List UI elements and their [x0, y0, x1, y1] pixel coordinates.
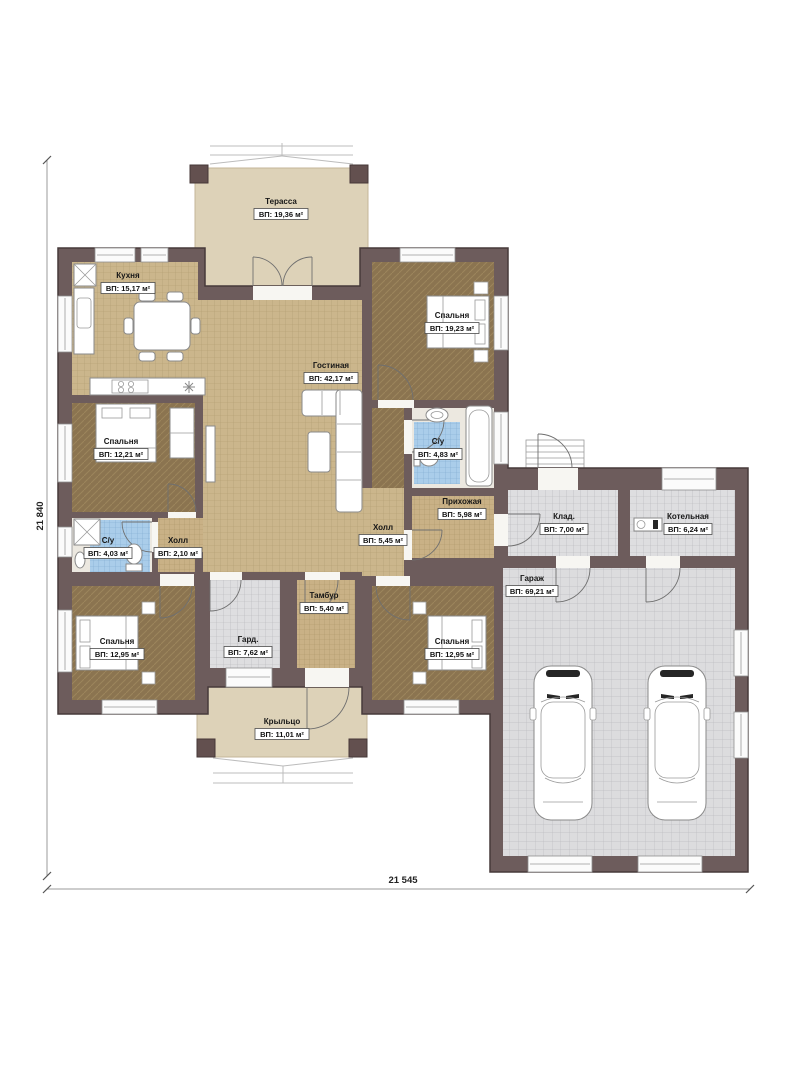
- coffee-table: [308, 432, 330, 472]
- room-name: Спальня: [104, 437, 139, 446]
- terrace-roof-lines: [210, 143, 353, 164]
- room-area: ВП: 7,62 м²: [228, 648, 269, 657]
- room-name: Спальня: [100, 637, 135, 646]
- room-area: ВП: 15,17 м²: [106, 284, 151, 293]
- room-area: ВП: 2,10 м²: [158, 549, 199, 558]
- porch-roof-lines: [213, 758, 353, 783]
- room-name: Спальня: [435, 637, 470, 646]
- room-area: ВП: 7,00 м²: [544, 525, 585, 534]
- room-name: Терасса: [265, 197, 297, 206]
- room-name: Крыльцо: [264, 717, 301, 726]
- room-label-boiler: Котельная ВП: 6,24 м²: [664, 512, 712, 535]
- kitchen-corner-unit: [74, 264, 96, 286]
- corridor-right-floor: [372, 408, 404, 488]
- car: [530, 666, 596, 820]
- garage-door: [528, 856, 592, 872]
- room-name: Гараж: [520, 574, 544, 583]
- dimension-bottom: 21 545: [43, 875, 754, 893]
- room-name: Котельная: [667, 512, 709, 521]
- room-area: ВП: 12,95 м²: [95, 650, 140, 659]
- window: [58, 527, 72, 557]
- room-area: ВП: 12,95 м²: [430, 650, 475, 659]
- window: [95, 248, 135, 262]
- window: [734, 712, 748, 758]
- exterior-steps: [526, 440, 584, 468]
- car: [644, 666, 710, 820]
- room-name: Тамбур: [309, 591, 338, 600]
- room-name: Клад.: [553, 512, 575, 521]
- room-name: Гостиная: [313, 361, 349, 370]
- bathtub-icon: [466, 406, 492, 486]
- dimension-left-value: 21 840: [35, 501, 46, 530]
- kitchen-counter-left: [74, 288, 94, 354]
- room-area: ВП: 5,45 м²: [363, 536, 404, 545]
- dimension-left: 21 840: [35, 156, 51, 880]
- window: [734, 630, 748, 676]
- window: [662, 468, 716, 490]
- window: [58, 296, 72, 352]
- window: [141, 248, 168, 262]
- room-storage-floor: [508, 490, 618, 556]
- room-area: ВП: 19,36 м²: [259, 210, 304, 219]
- floor-plan-drawing: Терасса ВП: 19,36 м² Кухня ВП: 15,17 м² …: [0, 0, 792, 1080]
- window: [226, 668, 272, 687]
- room-name: Холл: [168, 536, 188, 545]
- room-name: Прихожая: [442, 497, 482, 506]
- boiler-icon: [634, 518, 662, 531]
- room-name: Кухня: [116, 271, 140, 280]
- room-area: ВП: 6,24 м²: [668, 525, 709, 534]
- room-area: ВП: 42,17 м²: [309, 374, 354, 383]
- room-area: ВП: 19,23 м²: [430, 324, 475, 333]
- window: [58, 424, 72, 482]
- room-name: С/у: [432, 437, 445, 446]
- room-area: ВП: 5,98 м²: [442, 510, 483, 519]
- sink-icon: [426, 408, 448, 422]
- wardrobe-cabinet: [170, 408, 194, 458]
- window: [400, 248, 455, 262]
- terrace-floor: [195, 168, 368, 286]
- room-label-hallway: Прихожая ВП: 5,98 м²: [438, 497, 486, 520]
- room-area: ВП: 4,83 м²: [418, 450, 459, 459]
- room-name: Спальня: [435, 311, 470, 320]
- room-area: ВП: 12,21 м²: [99, 450, 144, 459]
- sink-icon: [75, 552, 85, 568]
- window: [58, 610, 72, 672]
- room-area: ВП: 5,40 м²: [304, 604, 345, 613]
- room-name: С/у: [102, 536, 115, 545]
- garage-door: [638, 856, 702, 872]
- floor-plan-page: Терасса ВП: 19,36 м² Кухня ВП: 15,17 м² …: [0, 0, 792, 1080]
- window: [494, 296, 508, 350]
- window: [102, 700, 157, 714]
- room-area: ВП: 4,03 м²: [88, 549, 129, 558]
- room-area: ВП: 69,21 м²: [510, 587, 555, 596]
- stove-icon: [112, 380, 148, 393]
- room-name: Гард.: [238, 635, 259, 644]
- dimension-bottom-value: 21 545: [388, 875, 418, 886]
- shower-icon: [74, 519, 100, 545]
- room-name: Холл: [373, 523, 393, 532]
- window: [494, 412, 508, 464]
- room-hall-big-floor: [362, 488, 404, 576]
- window: [404, 700, 459, 714]
- room-area: ВП: 11,01 м²: [260, 730, 304, 739]
- tv-unit: [206, 426, 215, 482]
